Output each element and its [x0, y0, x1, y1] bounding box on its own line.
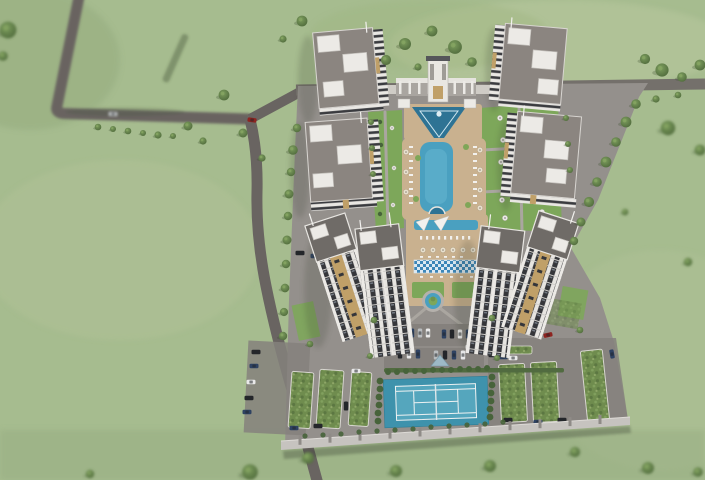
tennis-court [383, 376, 489, 428]
lounger-row [420, 236, 470, 240]
apartment-building-ne-1 [488, 17, 567, 112]
carports-green-roof [288, 369, 372, 429]
aerial-render-scene [0, 0, 705, 480]
apartment-building-nw-2 [305, 111, 384, 211]
render-canvas [0, 0, 705, 480]
palm-centerpiece [431, 297, 436, 302]
car [108, 112, 117, 117]
apartment-building-ne-2 [500, 105, 584, 208]
apartment-building-nw-1 [312, 21, 389, 116]
main-swimming-pool [402, 138, 486, 223]
